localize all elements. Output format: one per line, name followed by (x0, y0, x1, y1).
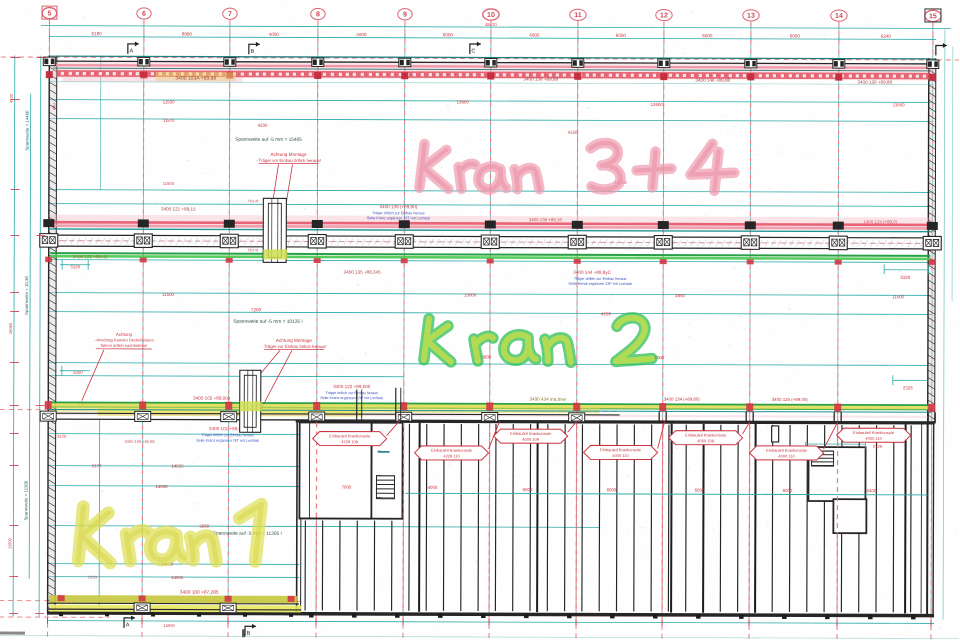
svg-text:Spannweite = 10,30: Spannweite = 10,30 (24, 276, 29, 316)
svg-text:3400 102 +89,000: 3400 102 +89,000 (193, 396, 231, 401)
svg-text:6000: 6000 (607, 487, 617, 492)
svg-text:8: 8 (316, 11, 320, 18)
svg-text:Träger örtlich zur Einbau hera: Träger örtlich zur Einbau heraus (201, 433, 254, 437)
svg-text:A: A (126, 622, 130, 628)
svg-text:Spannweite auf -5 mm = 10135 !: Spannweite auf -5 mm = 10135 ! (233, 319, 302, 325)
svg-text:2326: 2326 (903, 385, 913, 390)
svg-text:9: 9 (403, 12, 407, 19)
svg-text:Achtung: Achtung (116, 332, 133, 337)
svg-text:3120: 3120 (57, 434, 67, 439)
svg-text:4000 109: 4000 109 (522, 437, 539, 442)
svg-text:7170: 7170 (88, 575, 98, 580)
svg-text:13000: 13000 (464, 292, 477, 297)
svg-text:5860: 5860 (199, 524, 209, 529)
svg-text:3490 434 ma.bnw: 3490 434 ma.bnw (529, 397, 566, 402)
svg-text:79,5 /9: 79,5 /9 (247, 248, 258, 252)
svg-text:7: 7 (228, 11, 232, 18)
svg-text:Einbauteil Krankonsole: Einbauteil Krankonsole (431, 448, 473, 453)
svg-text:Träger örtlich zur Einbau hera: Träger örtlich zur Einbau heraus (325, 391, 378, 395)
svg-text:3326: 3326 (900, 275, 910, 280)
svg-text:5170: 5170 (92, 463, 102, 468)
svg-text:6180: 6180 (92, 31, 103, 36)
svg-text:3400 146 +89,88: 3400 146 +89,88 (695, 78, 730, 83)
svg-text:6000: 6000 (790, 33, 801, 38)
svg-text:Einbauteil Krankonsole: Einbauteil Krankonsole (766, 448, 808, 453)
svg-text:4000 110: 4000 110 (778, 454, 795, 459)
svg-text:Einbauteil Krankonsole: Einbauteil Krankonsole (600, 447, 642, 452)
svg-text:14555: 14555 (171, 575, 184, 580)
svg-text:14: 14 (835, 13, 843, 20)
svg-text:C: C (471, 48, 475, 54)
svg-text:6: 6 (142, 11, 146, 18)
svg-text:4850: 4850 (675, 293, 685, 298)
svg-text:12: 12 (660, 12, 668, 19)
svg-text:Spannweite auf -5 mm = 11305 !: Spannweite auf -5 mm = 11305 ! (213, 531, 282, 537)
svg-text:- Träger vor Einbau örtlich he: - Träger vor Einbau örtlich heraus! (256, 158, 321, 163)
svg-text:6000: 6000 (695, 488, 705, 493)
svg-text:640: 640 (52, 103, 57, 110)
svg-text:6000: 6000 (783, 488, 793, 493)
svg-text:4000: 4000 (529, 33, 540, 38)
svg-text:3400 122 +89,000: 3400 122 +89,000 (333, 384, 371, 389)
svg-text:4000 109: 4000 109 (697, 438, 714, 443)
svg-text:B: B (250, 49, 254, 55)
svg-text:Einbauteil Krankonsole: Einbauteil Krankonsole (685, 432, 727, 437)
svg-text:5400: 5400 (867, 488, 877, 493)
svg-text:3400 132 +88,45: 3400 132 +88,45 (73, 254, 108, 259)
svg-text:1400 124 (+89,0): 1400 124 (+89,0) (864, 219, 898, 224)
svg-text:6000: 6000 (616, 33, 627, 38)
svg-text:11500: 11500 (892, 294, 904, 299)
svg-text:Spannweite = 14460: Spannweite = 14460 (25, 110, 30, 151)
svg-text:- Anschlag Kamotu Deckelsystem: - Anschlag Kamotu Deckelsystem (94, 337, 154, 342)
svg-text:12600: 12600 (651, 102, 664, 107)
svg-text:13: 13 (747, 13, 755, 20)
svg-text:11500: 11500 (163, 100, 175, 105)
svg-text:fahren örtlich nachbohren!: fahren örtlich nachbohren! (101, 343, 147, 348)
svg-text:6240: 6240 (881, 34, 892, 39)
svg-text:7200: 7200 (251, 307, 262, 312)
svg-text:3400 144 +88,9yC: 3400 144 +88,9yC (573, 270, 611, 275)
svg-text:13800: 13800 (457, 99, 470, 104)
svg-text:3400 136 +89,16: 3400 136 +89,16 (529, 217, 563, 222)
svg-text:4229 110: 4229 110 (443, 453, 460, 458)
svg-text:11570: 11570 (163, 118, 175, 123)
svg-text:14555: 14555 (171, 464, 184, 469)
svg-text:14050: 14050 (163, 623, 175, 628)
svg-text:3400 100 +87,285: 3400 100 +87,285 (180, 590, 219, 596)
svg-text:Seite Kranz ergänzen 76T mit L: Seite Kranz ergänzen 76T mit Lochtab (367, 216, 430, 220)
svg-text:3400 138 (+89,80): 3400 138 (+89,80) (380, 204, 418, 209)
svg-text:Achtung Montage: Achtung Montage (276, 338, 312, 343)
svg-text:79,5 /9: 79,5 /9 (248, 199, 259, 203)
svg-text:4000 110: 4000 110 (865, 436, 882, 441)
svg-text:3400 121 +89,15: 3400 121 +89,15 (161, 206, 196, 211)
svg-text:7000: 7000 (342, 485, 352, 490)
svg-text:3400 135 +88,345: 3400 135 +88,345 (344, 270, 382, 275)
svg-text:Achtung Montage: Achtung Montage (271, 152, 307, 157)
svg-text:4000 110: 4000 110 (612, 453, 629, 458)
svg-text:6000: 6000 (443, 32, 454, 37)
svg-text:Einbauteil Krankonsole: Einbauteil Krankonsole (510, 431, 552, 436)
svg-text:4229 109: 4229 109 (341, 439, 358, 444)
svg-text:Einbauteil Krankonsole: Einbauteil Krankonsole (853, 430, 895, 435)
svg-text:3400 103A +89,88: 3400 103A +89,88 (175, 76, 216, 82)
svg-text:4150: 4150 (601, 311, 611, 316)
svg-text:Träger drillen zur Einbau hera: Träger drillen zur Einbau heraus (574, 277, 627, 281)
svg-text:A: A (129, 48, 133, 54)
svg-text:B: B (247, 631, 251, 637)
svg-text:4000: 4000 (356, 32, 367, 37)
svg-text:14050: 14050 (155, 484, 168, 489)
svg-text:Seite Kranz ergänzen 23P mit L: Seite Kranz ergänzen 23P mit Lochtab (320, 396, 383, 400)
svg-text:Seite Kranz ergänzen 76T mit L: Seite Kranz ergänzen 76T mit Lochtab (196, 439, 259, 443)
svg-text:Spannweite = 11300: Spannweite = 11300 (23, 480, 28, 520)
svg-text:3400 130 +89,88: 3400 130 +89,88 (857, 80, 892, 85)
svg-text:3400 125 (+89,00): 3400 125 (+89,00) (772, 397, 809, 402)
svg-text:4930: 4930 (9, 93, 14, 103)
svg-text:6000: 6000 (523, 487, 533, 492)
svg-text:4200: 4200 (258, 123, 268, 128)
svg-text:11500: 11500 (162, 292, 174, 297)
svg-text:11500: 11500 (163, 181, 175, 186)
svg-text:4000: 4000 (428, 485, 438, 490)
svg-text:11500: 11500 (7, 537, 12, 549)
svg-text:3400 134 (+89,80): 3400 134 (+89,80) (664, 397, 701, 402)
svg-text:3400 138 +89,88: 3400 138 +89,88 (523, 77, 558, 82)
svg-text:Spannweite auf -5 mm = 15405: Spannweite auf -5 mm = 15405 (235, 137, 302, 143)
svg-text:Träger örtlich zur Einbau hera: Träger örtlich zur Einbau heraus (372, 211, 425, 215)
svg-text:3400 109 +92,85: 3400 109 +92,85 (125, 439, 156, 444)
svg-text:Einbauteil Krankonsole: Einbauteil Krankonsole (329, 433, 371, 438)
svg-text:- Träger vor Einbau örtlich he: - Träger vor Einbau örtlich heraus! (261, 344, 326, 349)
svg-text:8880: 8880 (182, 32, 193, 37)
svg-text:6000: 6000 (702, 33, 713, 38)
svg-text:11: 11 (574, 12, 582, 19)
svg-text:10: 10 (487, 12, 495, 19)
svg-text:15: 15 (929, 13, 937, 20)
svg-text:19050: 19050 (8, 322, 13, 334)
svg-text:2326: 2326 (873, 444, 883, 449)
svg-text:4000: 4000 (269, 32, 280, 37)
svg-text:Seite Herab ergänzen 23P mit L: Seite Herab ergänzen 23P mit Lochtab (568, 282, 631, 286)
svg-text:11500: 11500 (893, 102, 905, 107)
svg-text:5: 5 (47, 10, 51, 17)
svg-text:4150: 4150 (568, 130, 578, 135)
